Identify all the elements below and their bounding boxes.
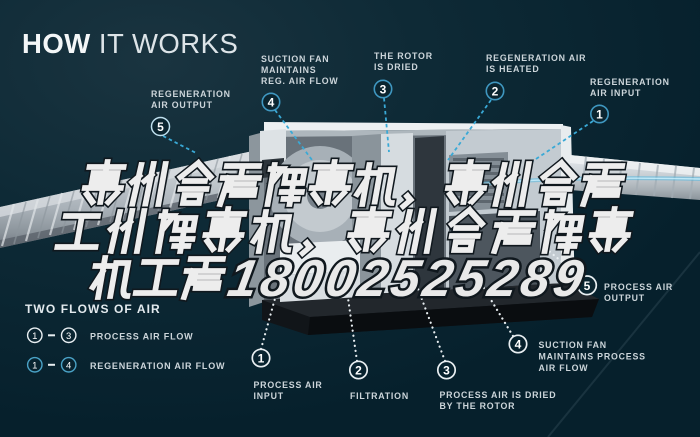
svg-text:AIR INPUT: AIR INPUT [590,88,641,98]
svg-text:BY THE ROTOR: BY THE ROTOR [440,401,516,411]
svg-text:3: 3 [66,331,71,342]
svg-text:4: 4 [515,338,522,352]
svg-text:1: 1 [32,331,37,342]
svg-text:REGENERATION AIR: REGENERATION AIR [486,53,586,63]
svg-text:IS HEATED: IS HEATED [486,64,539,74]
svg-text:FILTRATION: FILTRATION [350,391,409,401]
svg-text:4: 4 [268,96,275,110]
svg-text:PROCESS AIR: PROCESS AIR [254,380,323,390]
svg-text:REGENERATION: REGENERATION [151,89,231,99]
svg-text:PROCESS AIR IS DRIED: PROCESS AIR IS DRIED [440,390,557,400]
svg-text:SUCTION FAN: SUCTION FAN [539,340,607,350]
svg-text:18002525289: 18002525289 [224,250,592,308]
svg-text:PROCESS AIR: PROCESS AIR [604,282,673,292]
svg-text:REGENERATION: REGENERATION [590,77,670,87]
svg-text:4: 4 [66,361,71,372]
svg-text:THE ROTOR: THE ROTOR [374,51,433,61]
svg-text:INPUT: INPUT [254,391,284,401]
svg-text:1: 1 [32,361,37,372]
svg-text:3: 3 [380,83,387,97]
svg-text:TWO FLOWS OF AIR: TWO FLOWS OF AIR [25,302,161,316]
svg-text:PROCESS AIR FLOW: PROCESS AIR FLOW [90,332,193,342]
svg-text:HOW IT WORKS: HOW IT WORKS [22,28,238,59]
svg-text:SUCTION FAN: SUCTION FAN [261,54,329,64]
svg-text:3: 3 [443,364,450,378]
svg-text:AIR OUTPUT: AIR OUTPUT [151,100,213,110]
svg-text:5: 5 [157,120,164,134]
svg-text:2: 2 [492,85,499,99]
svg-text:IS DRIED: IS DRIED [374,62,419,72]
svg-text:1: 1 [258,352,265,366]
svg-text:2: 2 [355,364,362,378]
svg-text:1: 1 [596,108,603,122]
svg-text:MAINTAINS PROCESS: MAINTAINS PROCESS [539,352,646,362]
svg-text:AIR FLOW: AIR FLOW [539,363,589,373]
svg-text:REGENERATION AIR FLOW: REGENERATION AIR FLOW [90,361,225,371]
svg-text:OUTPUT: OUTPUT [604,293,645,303]
svg-text:REG. AIR FLOW: REG. AIR FLOW [261,76,339,86]
svg-text:MAINTAINS: MAINTAINS [261,65,316,75]
